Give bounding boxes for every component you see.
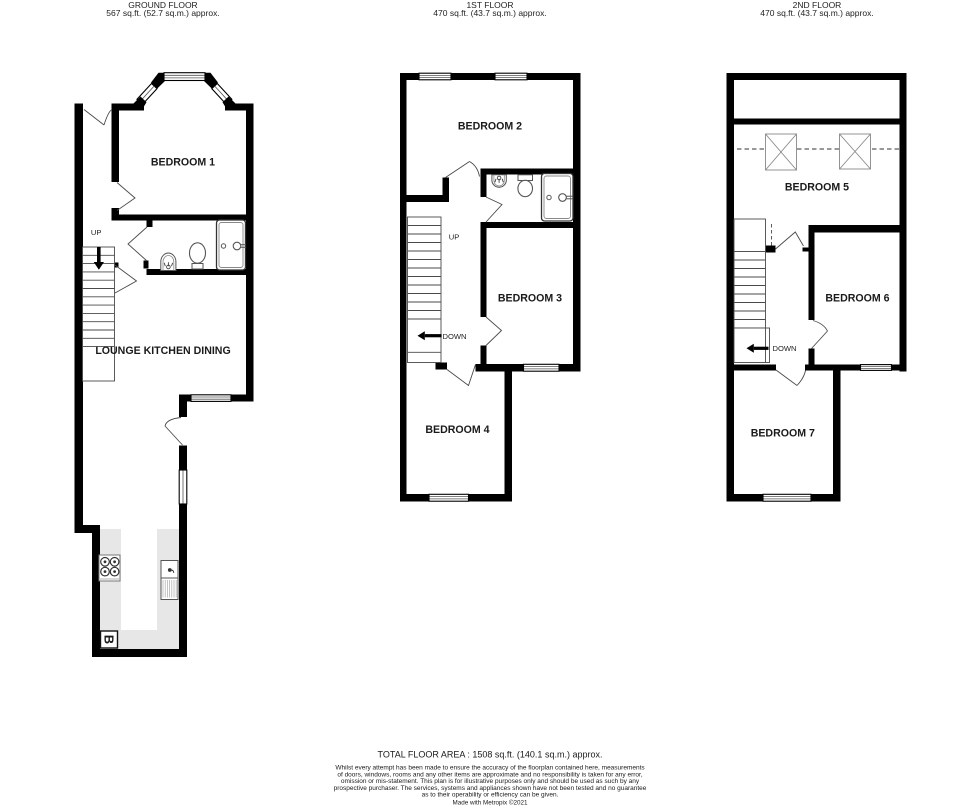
svg-text:B: B — [102, 635, 117, 644]
svg-text:DOWN: DOWN — [773, 344, 797, 353]
svg-text:BEDROOM 6: BEDROOM 6 — [825, 292, 889, 304]
svg-text:470 sq.ft. (43.7 sq.m.) approx: 470 sq.ft. (43.7 sq.m.) approx. — [433, 8, 546, 18]
svg-text:LOUNGE KITCHEN DINING: LOUNGE KITCHEN DINING — [95, 345, 230, 357]
svg-text:TOTAL FLOOR AREA : 1508 sq.ft.: TOTAL FLOOR AREA : 1508 sq.ft. (140.1 sq… — [378, 750, 603, 760]
svg-text:as to their operability or eff: as to their operability or efficiency ca… — [422, 792, 559, 799]
svg-text:UP: UP — [449, 233, 460, 242]
svg-text:Made with Metropix ©2021: Made with Metropix ©2021 — [453, 799, 528, 807]
svg-text:UP: UP — [91, 228, 102, 237]
svg-text:BEDROOM 5: BEDROOM 5 — [785, 182, 849, 194]
svg-text:BEDROOM 1: BEDROOM 1 — [151, 157, 215, 169]
svg-text:567 sq.ft. (52.7 sq.m.) approx: 567 sq.ft. (52.7 sq.m.) approx. — [106, 8, 219, 18]
svg-text:BEDROOM 4: BEDROOM 4 — [425, 424, 489, 436]
svg-text:470 sq.ft. (43.7 sq.m.) approx: 470 sq.ft. (43.7 sq.m.) approx. — [760, 8, 873, 18]
svg-text:BEDROOM 3: BEDROOM 3 — [498, 292, 562, 304]
svg-text:BEDROOM 7: BEDROOM 7 — [751, 428, 815, 440]
svg-text:DOWN: DOWN — [443, 332, 467, 341]
svg-text:BEDROOM 2: BEDROOM 2 — [458, 121, 522, 133]
